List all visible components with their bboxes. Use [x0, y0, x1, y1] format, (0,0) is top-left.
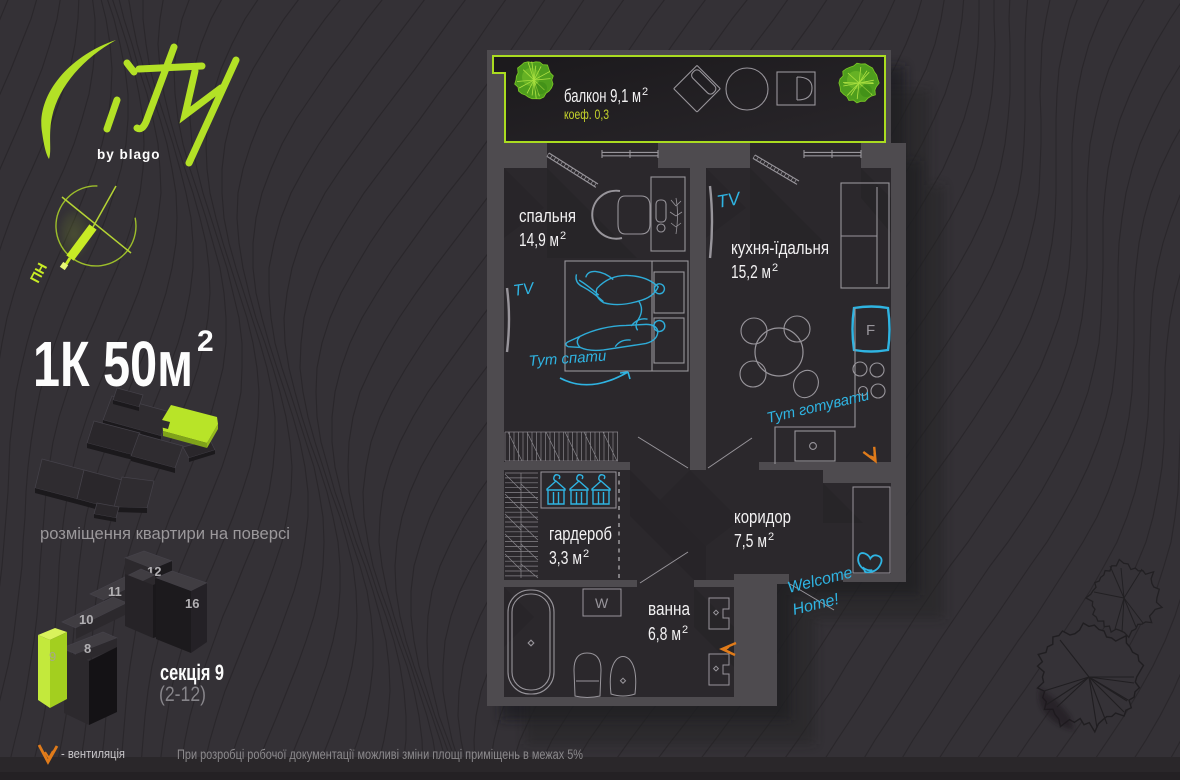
svg-text:спальня: спальня: [519, 206, 576, 226]
svg-text:6,8 м: 6,8 м: [648, 624, 681, 644]
svg-text:W: W: [595, 595, 609, 611]
svg-text:11: 11: [108, 584, 122, 599]
svg-text:кухня-їдальня: кухня-їдальня: [731, 238, 829, 258]
svg-text:7,5 м: 7,5 м: [734, 531, 767, 551]
svg-text:2: 2: [768, 531, 774, 543]
svg-text:коеф. 0,3: коеф. 0,3: [564, 106, 609, 122]
svg-text:2: 2: [682, 624, 688, 636]
svg-text:9: 9: [49, 649, 56, 664]
svg-text:TV: TV: [512, 280, 536, 300]
svg-text:При розробці робочої документа: При розробці робочої документації можлив…: [177, 747, 583, 762]
svg-text:- вентиляція: - вентиляція: [61, 746, 125, 761]
svg-text:(2-12): (2-12): [159, 683, 206, 706]
svg-text:2: 2: [642, 86, 648, 98]
svg-text:8: 8: [84, 641, 91, 656]
svg-text:16: 16: [185, 596, 199, 611]
svg-text:2: 2: [583, 548, 589, 560]
svg-text:ванна: ванна: [648, 599, 691, 619]
svg-text:2: 2: [197, 325, 214, 358]
svg-text:by blago: by blago: [97, 147, 161, 162]
svg-text:гардероб: гардероб: [549, 524, 612, 544]
svg-text:балкон 9,1 м: балкон 9,1 м: [564, 86, 641, 106]
svg-text:3,3 м: 3,3 м: [549, 548, 582, 568]
svg-text:15,2 м: 15,2 м: [731, 262, 771, 282]
svg-text:14,9 м: 14,9 м: [519, 230, 559, 250]
svg-text:10: 10: [79, 612, 93, 627]
svg-text:коридор: коридор: [734, 507, 791, 527]
svg-text:1К 50м: 1К 50м: [33, 328, 193, 400]
svg-text:F: F: [866, 322, 875, 339]
svg-text:2: 2: [560, 230, 566, 242]
svg-text:секція 9: секція 9: [160, 660, 224, 685]
svg-text:2: 2: [772, 262, 778, 274]
svg-text:розміщення квартири на поверсі: розміщення квартири на поверсі: [40, 524, 290, 543]
